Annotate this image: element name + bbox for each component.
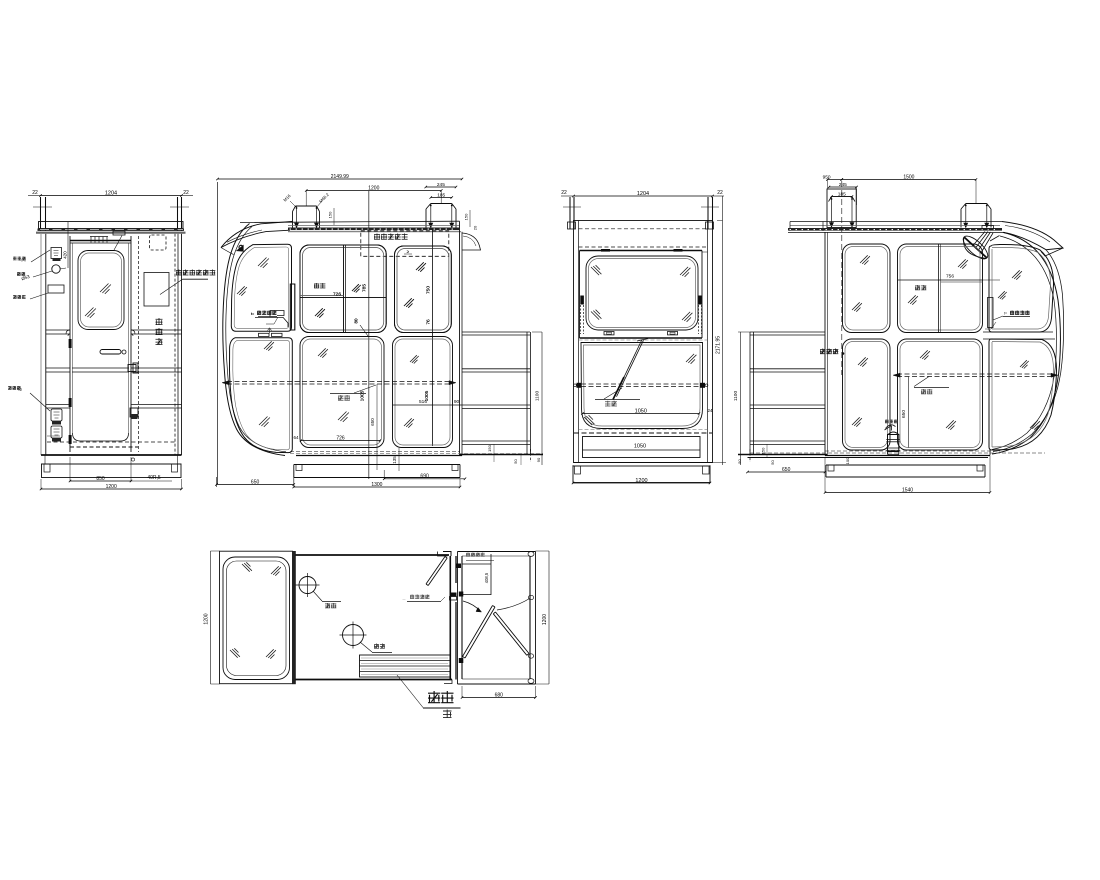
svg-text:1005: 1005 (360, 390, 366, 401)
svg-text:750: 750 (425, 286, 431, 294)
svg-text:650: 650 (251, 479, 260, 485)
svg-text:50: 50 (513, 459, 518, 464)
svg-text:20: 20 (473, 225, 478, 230)
svg-text:1050: 1050 (634, 444, 646, 450)
svg-text:650: 650 (782, 467, 791, 473)
svg-text:22: 22 (32, 190, 38, 196)
svg-text:80: 80 (354, 318, 359, 324)
svg-text:1500: 1500 (903, 174, 914, 180)
svg-text:650: 650 (370, 418, 375, 426)
svg-text:1100: 1100 (733, 391, 739, 402)
svg-text:680: 680 (495, 692, 504, 698)
svg-text:1050: 1050 (635, 408, 647, 414)
svg-text:64: 64 (293, 435, 299, 440)
svg-text:2171.95: 2171.95 (716, 336, 722, 354)
svg-text:40R,5: 40R,5 (147, 475, 161, 481)
svg-text:2149.99: 2149.99 (331, 174, 349, 180)
svg-text:22: 22 (717, 190, 723, 196)
svg-text:22: 22 (183, 190, 189, 196)
svg-text:1200: 1200 (635, 478, 647, 484)
svg-text:150: 150 (761, 447, 766, 454)
svg-text:t=: t= (1004, 312, 1007, 316)
svg-text:420: 420 (63, 251, 68, 259)
svg-text:50: 50 (737, 459, 742, 464)
svg-text:726: 726 (333, 292, 341, 298)
svg-text:22: 22 (561, 190, 567, 196)
svg-text:950: 950 (823, 174, 831, 180)
svg-text:90: 90 (536, 457, 541, 462)
svg-text:...: ... (403, 597, 406, 601)
svg-text:1200: 1200 (542, 614, 548, 625)
svg-text:756: 756 (946, 274, 954, 280)
svg-text:24: 24 (707, 408, 713, 413)
svg-text:1300: 1300 (371, 482, 382, 488)
svg-text:245: 245 (437, 182, 445, 188)
svg-text:408,5: 408,5 (484, 572, 489, 583)
svg-text:150: 150 (328, 211, 333, 218)
svg-text:185: 185 (437, 192, 445, 198)
svg-text:650: 650 (901, 410, 907, 418)
svg-text:1204: 1204 (637, 191, 649, 197)
svg-text:135: 135 (392, 456, 397, 464)
svg-text:50: 50 (770, 460, 775, 465)
svg-text:150: 150 (487, 444, 492, 451)
svg-text:726: 726 (336, 435, 345, 441)
svg-text:516: 516 (419, 399, 427, 405)
svg-text:1540: 1540 (902, 487, 913, 493)
svg-text:1200: 1200 (106, 484, 117, 490)
svg-text:1200: 1200 (368, 185, 379, 191)
svg-text:785: 785 (362, 284, 368, 292)
svg-text:90: 90 (454, 399, 460, 405)
svg-text:100: 100 (845, 457, 850, 464)
svg-text:690: 690 (420, 474, 429, 480)
svg-text:245: 245 (839, 182, 847, 188)
svg-text:1100: 1100 (535, 391, 541, 402)
svg-text:150: 150 (464, 213, 469, 220)
svg-text:1200: 1200 (204, 613, 210, 624)
svg-text:850: 850 (96, 476, 105, 482)
svg-text:76: 76 (425, 319, 431, 325)
svg-text:1204: 1204 (105, 190, 117, 196)
